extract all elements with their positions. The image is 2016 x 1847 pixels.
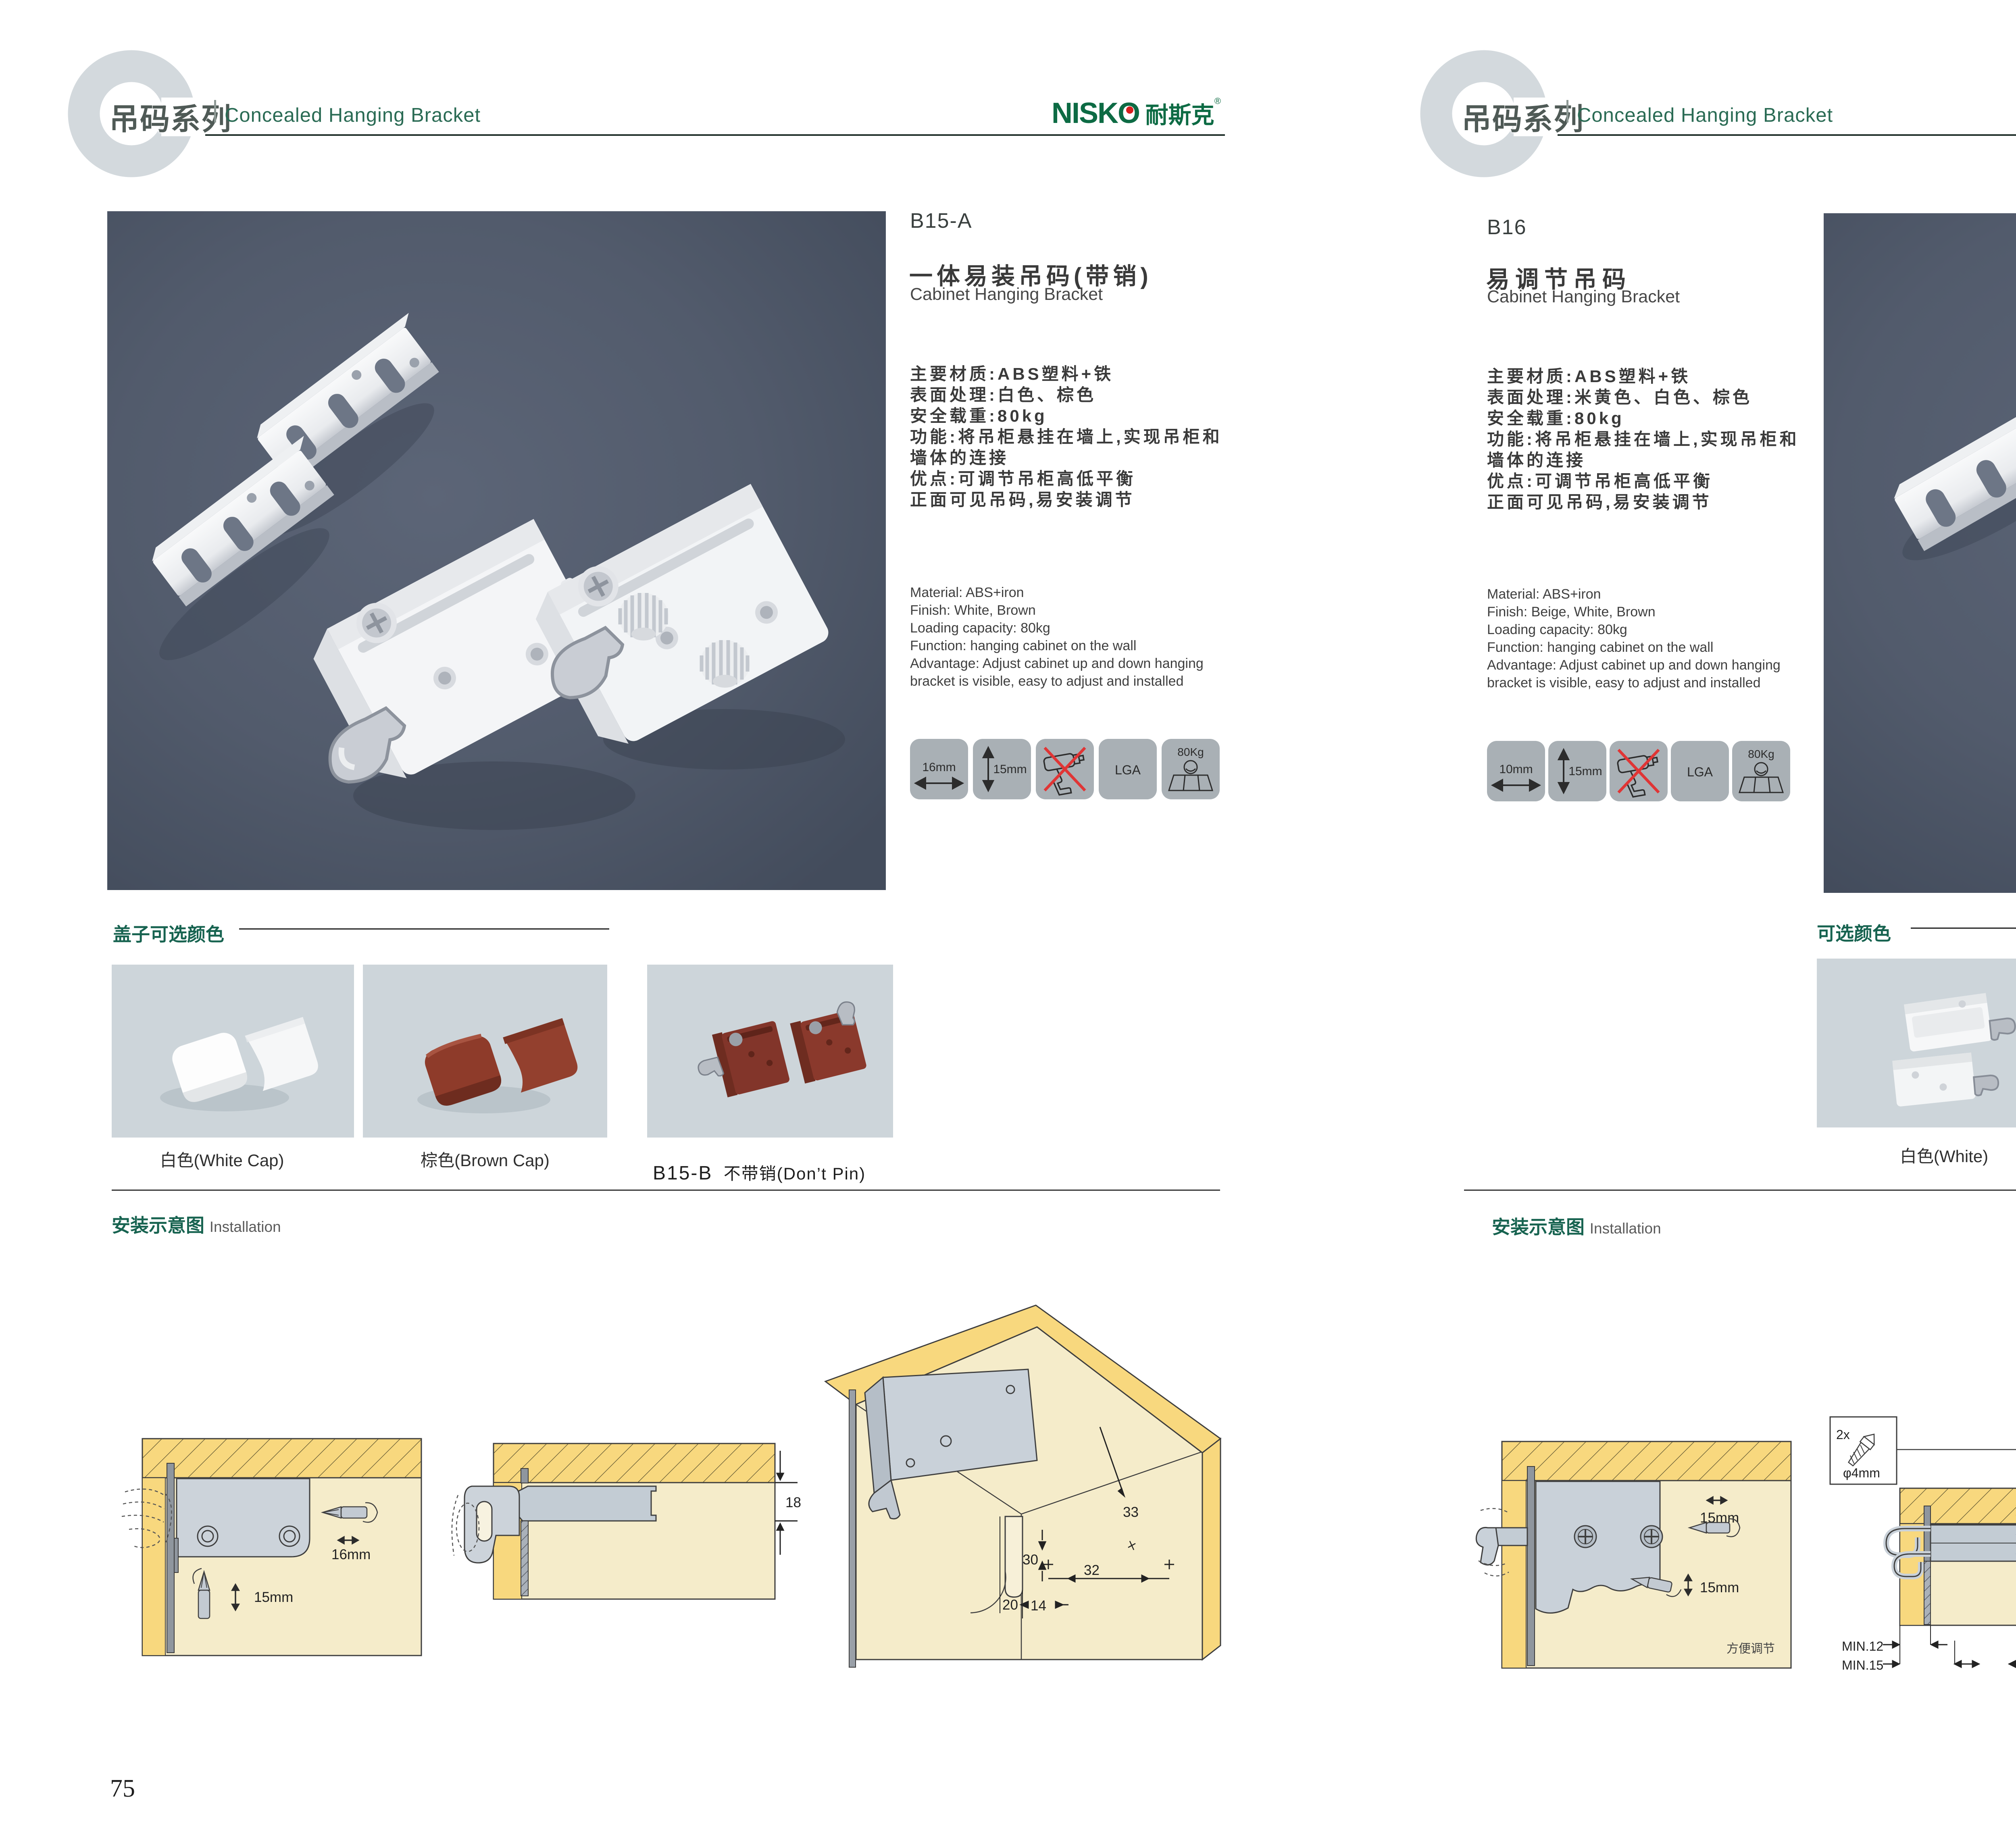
svg-text:15mm: 15mm	[1568, 765, 1602, 778]
svg-text:方便调节: 方便调节	[1727, 1642, 1775, 1656]
svg-text:20: 20	[1002, 1597, 1018, 1613]
svg-text:16mm: 16mm	[922, 761, 956, 774]
svg-text:80Kg: 80Kg	[1177, 746, 1204, 758]
svg-text:15mm: 15mm	[1700, 1580, 1739, 1595]
svg-text:MIN.12: MIN.12	[1842, 1639, 1883, 1654]
svg-text:18: 18	[785, 1495, 801, 1510]
svg-text:16mm: 16mm	[331, 1547, 371, 1562]
svg-text:LGA: LGA	[1115, 763, 1141, 777]
svg-text:2x: 2x	[1836, 1427, 1850, 1442]
svg-text:14: 14	[1031, 1598, 1046, 1614]
svg-text:33: 33	[1123, 1504, 1139, 1520]
svg-text:10mm: 10mm	[1499, 763, 1533, 776]
svg-text:LGA: LGA	[1687, 765, 1713, 779]
svg-text:MIN.15: MIN.15	[1842, 1658, 1883, 1672]
svg-text:32: 32	[1084, 1562, 1100, 1578]
svg-text:15mm: 15mm	[254, 1589, 293, 1605]
svg-text:30: 30	[1023, 1552, 1038, 1568]
svg-text:80Kg: 80Kg	[1748, 748, 1774, 760]
svg-text:φ4mm: φ4mm	[1843, 1466, 1880, 1480]
svg-text:15mm: 15mm	[993, 763, 1027, 776]
